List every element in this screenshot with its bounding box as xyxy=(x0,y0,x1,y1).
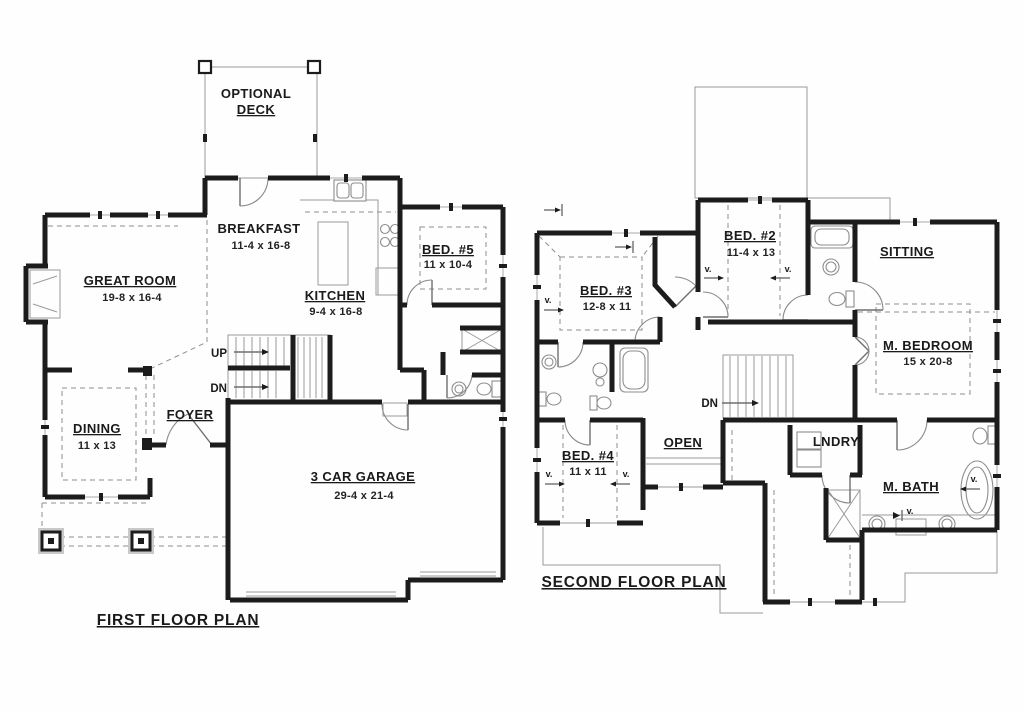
post xyxy=(142,438,152,450)
window-vent-marks xyxy=(544,204,633,253)
deck-post-left xyxy=(199,61,211,73)
hall-closet-shelf xyxy=(462,329,502,352)
vault-marker-vanity: v. xyxy=(907,506,914,516)
room-label-dining: DINING xyxy=(73,421,121,436)
room-dims-bed3: 12-8 x 11 xyxy=(583,301,632,313)
kitchen-counter xyxy=(300,200,400,295)
stairs-down-label-2: DN xyxy=(701,398,718,410)
room-label-foyer: FOYER xyxy=(167,407,214,422)
deck-tick xyxy=(203,134,207,142)
first-floor-plan-title: FIRST FLOOR PLAN xyxy=(97,612,260,629)
room-label-great-room: GREAT ROOM xyxy=(84,273,177,288)
room-dims-bed4: 11 x 11 xyxy=(569,466,607,478)
stairs-up-label: UP xyxy=(211,348,227,360)
optional-deck-outline xyxy=(205,67,317,178)
first-floor-plan: OPTIONAL DECK BREAKFAST 11-4 x 16-8 GREA… xyxy=(26,61,507,629)
room-label-bed2: BED. #2 xyxy=(724,228,776,243)
deck-tick xyxy=(313,134,317,142)
room-dims-dining: 11 x 13 xyxy=(78,440,116,452)
room-dims-m-bedroom: 15 x 20-8 xyxy=(903,356,952,368)
porch-columns xyxy=(38,528,154,554)
deck-label-line2: DECK xyxy=(237,102,276,117)
cooktop xyxy=(381,225,400,247)
room-label-breakfast: BREAKFAST xyxy=(217,221,300,236)
room-label-sitting: SITTING xyxy=(880,244,934,259)
vault-marker-bed2-right: v. xyxy=(785,264,792,274)
vault-marker-bed4-left: v. xyxy=(546,469,553,479)
second-floor-plan-title: SECOND FLOOR PLAN xyxy=(542,574,727,591)
room-dims-great-room: 19-8 x 16-4 xyxy=(102,292,162,304)
room-label-m-bedroom: M. BEDROOM xyxy=(883,338,973,353)
deck-post-right xyxy=(308,61,320,73)
deck-label-line1: OPTIONAL xyxy=(221,86,291,101)
room-dims-kitchen: 9-4 x 16-8 xyxy=(309,306,362,318)
vault-marker-bed3: v. xyxy=(545,295,552,305)
room-label-m-bath: M. BATH xyxy=(883,479,939,494)
hall-bath-fixtures xyxy=(539,348,648,410)
room-label-laundry: LNDRY xyxy=(813,434,859,449)
room-label-bed3: BED. #3 xyxy=(580,283,632,298)
room-dims-garage: 29-4 x 21-4 xyxy=(334,490,394,502)
room-label-garage: 3 CAR GARAGE xyxy=(311,469,415,484)
room-dims-bed5: 11 x 10-4 xyxy=(424,259,473,271)
stairs-down-label: DN xyxy=(210,383,227,395)
room-label-bed5: BED. #5 xyxy=(422,242,474,257)
second-floor-plan: v. v. v. v. v. v. v. BED. #2 11-4 x 13 S… xyxy=(533,87,1001,613)
room-dims-breakfast: 11-4 x 16-8 xyxy=(232,240,291,252)
vault-marker-bed2-left: v. xyxy=(705,264,712,274)
room-dims-bed2: 11-4 x 13 xyxy=(727,247,776,259)
fireplace xyxy=(30,270,60,318)
floor-plan-svg: OPTIONAL DECK BREAKFAST 11-4 x 16-8 GREA… xyxy=(0,0,1024,712)
room-label-bed4: BED. #4 xyxy=(562,448,614,463)
post xyxy=(143,366,152,376)
open-label: OPEN xyxy=(664,435,702,450)
first-floor-dashed-lines xyxy=(42,212,486,546)
vault-marker-tub: v. xyxy=(971,474,978,484)
room-label-kitchen: KITCHEN xyxy=(305,288,366,303)
vault-marker-bed4-right: v. xyxy=(623,469,630,479)
kitchen-sink xyxy=(334,180,366,201)
floor-plan-image: OPTIONAL DECK BREAKFAST 11-4 x 16-8 GREA… xyxy=(0,0,1024,712)
bed2-bath-fixtures xyxy=(811,226,854,307)
second-floor-stairs xyxy=(722,355,793,418)
